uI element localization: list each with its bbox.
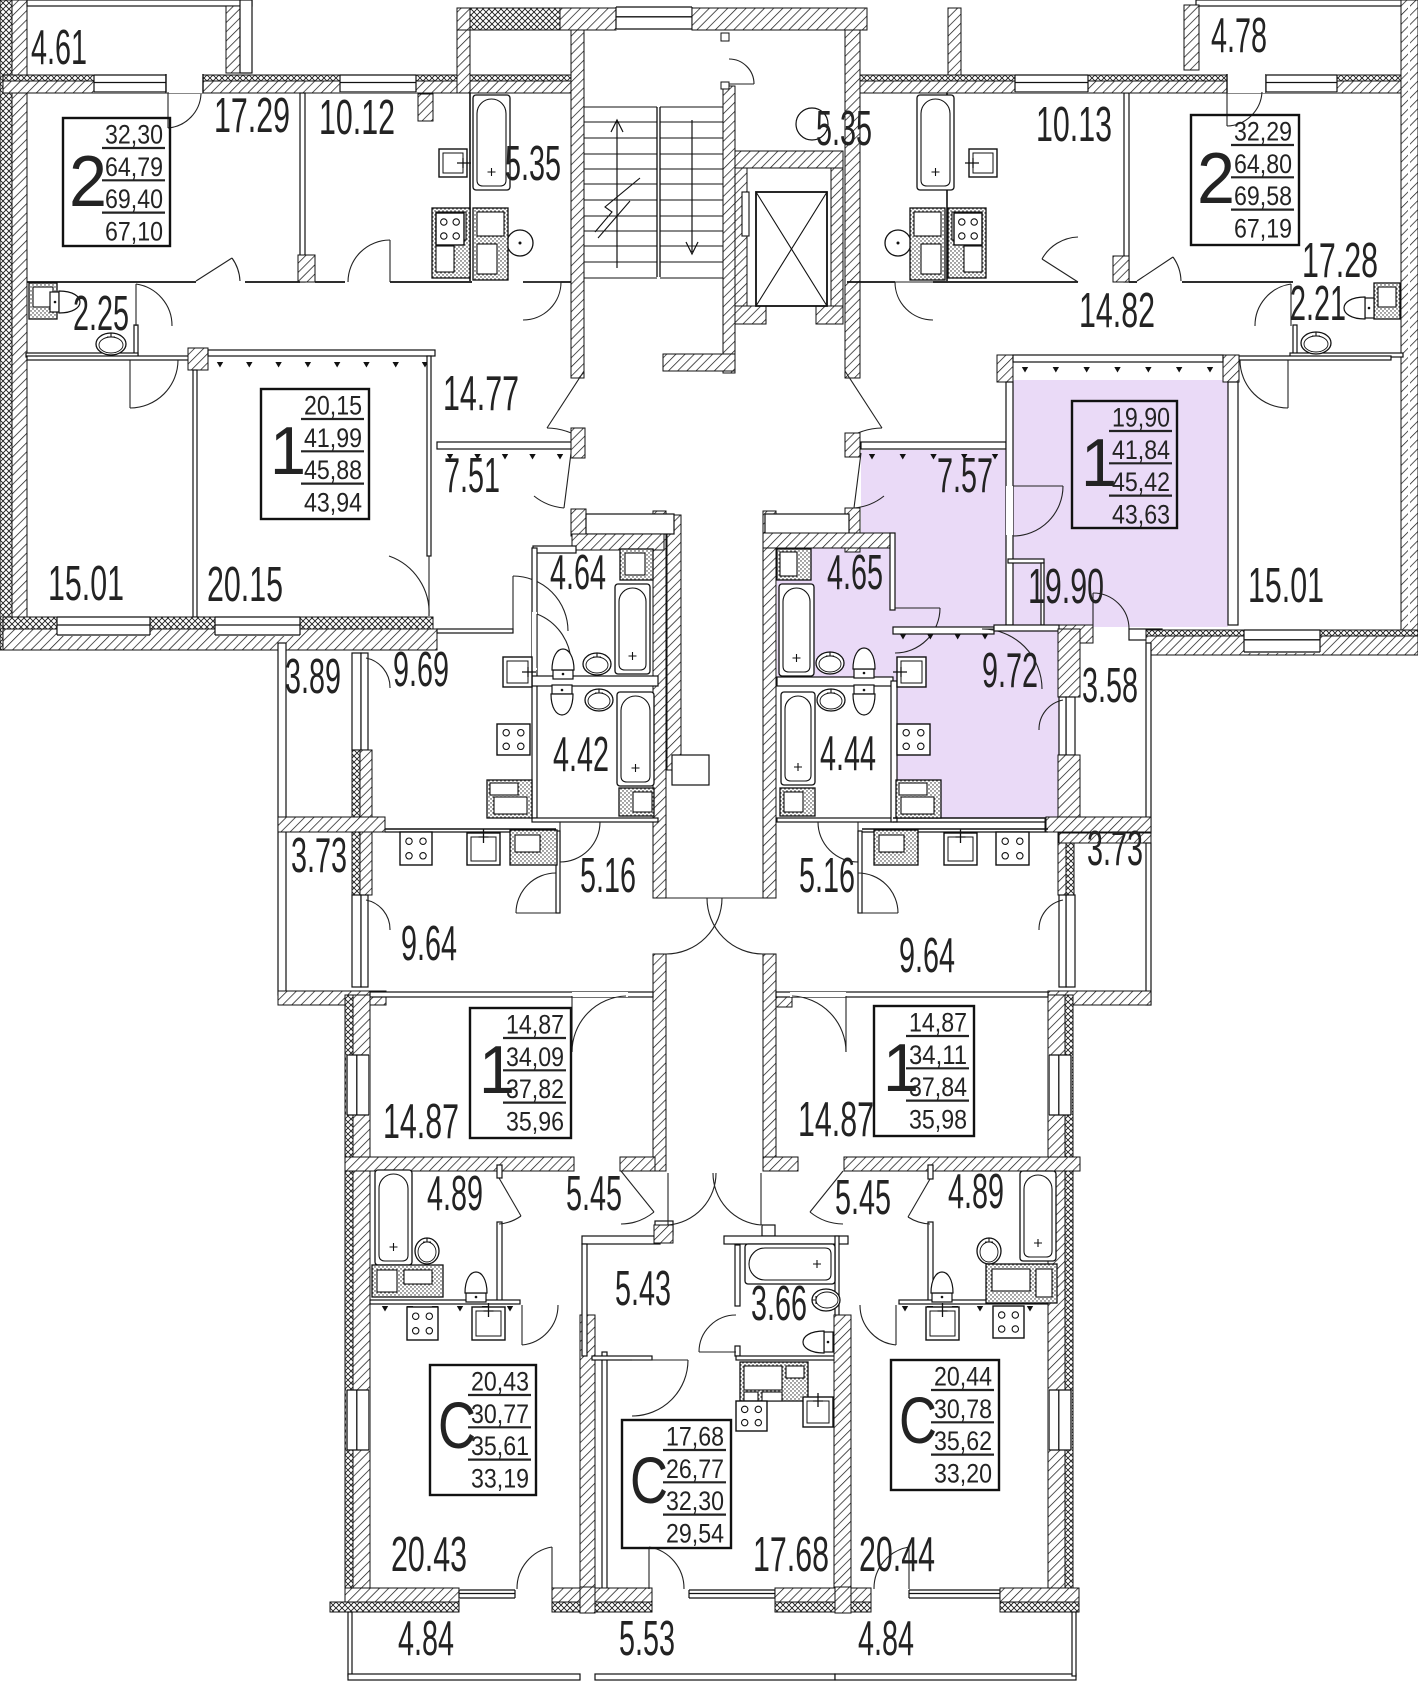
svg-text:14.87: 14.87	[383, 1095, 459, 1149]
svg-text:C: C	[630, 1443, 668, 1517]
svg-text:4.64: 4.64	[550, 546, 606, 600]
svg-text:32,30: 32,30	[666, 1486, 724, 1516]
svg-text:2.21: 2.21	[1290, 277, 1346, 331]
svg-text:45,88: 45,88	[304, 455, 362, 485]
svg-text:15.01: 15.01	[48, 557, 124, 611]
svg-text:4.84: 4.84	[398, 1612, 454, 1666]
svg-text:29,54: 29,54	[666, 1518, 724, 1548]
svg-text:C: C	[438, 1388, 476, 1462]
svg-text:30,77: 30,77	[471, 1399, 529, 1429]
svg-text:15.01: 15.01	[1248, 559, 1324, 613]
svg-text:32,29: 32,29	[1234, 117, 1292, 147]
svg-text:10.12: 10.12	[319, 91, 395, 145]
svg-text:5.16: 5.16	[799, 849, 855, 903]
svg-text:7.57: 7.57	[937, 449, 993, 503]
svg-text:69,40: 69,40	[105, 184, 163, 214]
svg-text:2: 2	[1197, 139, 1235, 219]
svg-text:C: C	[899, 1383, 937, 1457]
svg-text:14.77: 14.77	[443, 367, 519, 421]
svg-text:32,30: 32,30	[105, 120, 163, 150]
svg-text:9.69: 9.69	[393, 643, 449, 697]
svg-text:3.73: 3.73	[291, 829, 347, 883]
svg-text:67,10: 67,10	[105, 216, 163, 246]
svg-text:4.89: 4.89	[948, 1165, 1004, 1219]
svg-text:69,58: 69,58	[1234, 181, 1292, 211]
svg-text:14.87: 14.87	[798, 1093, 874, 1147]
svg-text:2.25: 2.25	[73, 287, 129, 341]
svg-text:19,90: 19,90	[1112, 403, 1170, 433]
svg-text:20,43: 20,43	[471, 1367, 529, 1397]
svg-text:17.68: 17.68	[753, 1528, 829, 1582]
svg-text:5.45: 5.45	[835, 1171, 891, 1225]
svg-text:20,44: 20,44	[934, 1362, 992, 1392]
svg-text:4.44: 4.44	[820, 727, 876, 781]
svg-text:17.29: 17.29	[214, 89, 290, 143]
svg-text:35,98: 35,98	[909, 1104, 967, 1134]
svg-text:1: 1	[270, 413, 306, 489]
svg-text:35,62: 35,62	[934, 1426, 992, 1456]
svg-text:7.51: 7.51	[444, 449, 500, 503]
svg-text:41,84: 41,84	[1112, 435, 1170, 465]
svg-text:9.72: 9.72	[982, 644, 1038, 698]
svg-text:5.43: 5.43	[615, 1262, 671, 1316]
svg-text:2: 2	[69, 142, 107, 222]
svg-text:4.61: 4.61	[31, 21, 87, 75]
svg-text:3.66: 3.66	[751, 1277, 807, 1331]
svg-text:67,19: 67,19	[1234, 213, 1292, 243]
svg-text:30,78: 30,78	[934, 1394, 992, 1424]
svg-text:43,63: 43,63	[1112, 499, 1170, 529]
svg-text:5.53: 5.53	[619, 1612, 675, 1666]
svg-text:14.82: 14.82	[1079, 284, 1155, 338]
svg-text:35,61: 35,61	[471, 1431, 529, 1461]
svg-text:20.15: 20.15	[207, 558, 283, 612]
svg-text:19.90: 19.90	[1028, 560, 1104, 614]
svg-text:3.73: 3.73	[1087, 822, 1143, 876]
svg-text:1: 1	[883, 1030, 919, 1106]
svg-text:5.35: 5.35	[816, 102, 872, 156]
svg-text:1: 1	[1081, 425, 1117, 501]
svg-text:4.78: 4.78	[1211, 9, 1267, 63]
svg-text:17,68: 17,68	[666, 1422, 724, 1452]
svg-text:3.58: 3.58	[1082, 659, 1138, 713]
svg-text:20.44: 20.44	[859, 1528, 935, 1582]
svg-text:20,15: 20,15	[304, 391, 362, 421]
svg-text:3.89: 3.89	[285, 650, 341, 704]
svg-text:43,94: 43,94	[304, 487, 362, 517]
svg-text:35,96: 35,96	[506, 1106, 564, 1136]
svg-text:33,20: 33,20	[934, 1458, 992, 1488]
svg-text:41,99: 41,99	[304, 423, 362, 453]
svg-text:4.65: 4.65	[827, 546, 883, 600]
svg-text:45,42: 45,42	[1112, 467, 1170, 497]
svg-text:1: 1	[479, 1032, 515, 1108]
svg-text:10.13: 10.13	[1036, 98, 1112, 152]
svg-text:5.35: 5.35	[505, 137, 561, 191]
svg-text:4.42: 4.42	[553, 728, 609, 782]
svg-text:64,80: 64,80	[1234, 149, 1292, 179]
svg-text:9.64: 9.64	[401, 917, 457, 971]
svg-text:9.64: 9.64	[899, 929, 955, 983]
svg-text:20.43: 20.43	[391, 1528, 467, 1582]
svg-text:64,79: 64,79	[105, 152, 163, 182]
svg-text:4.89: 4.89	[427, 1167, 483, 1221]
svg-text:33,19: 33,19	[471, 1463, 529, 1493]
svg-text:26,77: 26,77	[666, 1454, 724, 1484]
svg-text:5.45: 5.45	[566, 1167, 622, 1221]
svg-text:4.84: 4.84	[858, 1612, 914, 1666]
svg-text:5.16: 5.16	[580, 849, 636, 903]
